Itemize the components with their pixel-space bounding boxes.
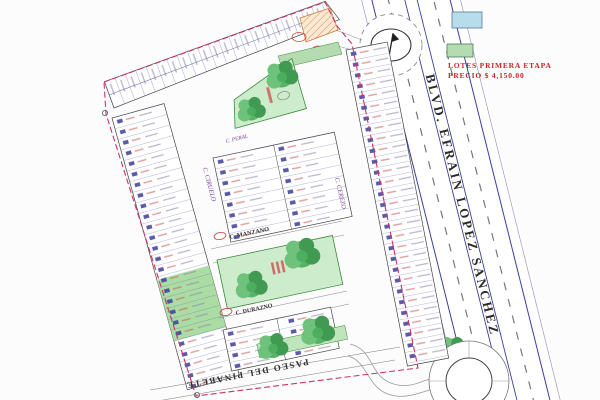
lots-left-column xyxy=(112,104,239,390)
park-upper xyxy=(222,58,307,128)
legend-line2: PRECIO $ 4,150.00 xyxy=(448,71,525,80)
street-ciruelo-label: C. CIRUELO xyxy=(201,167,217,203)
street-marker-oval xyxy=(213,231,226,240)
legend-swatch-green xyxy=(447,44,473,57)
site-plan-canvas: BLVD. EFRAIN LOPEZ SANCHEZ C. CI xyxy=(0,0,600,400)
street-peral-label: C. PERAL xyxy=(225,134,249,145)
legend-line1: LOTES PRIMERA ETAPA xyxy=(448,61,552,70)
legend-swatch-blue xyxy=(452,12,482,28)
survey-point xyxy=(102,110,107,115)
site-plan-drawing: BLVD. EFRAIN LOPEZ SANCHEZ C. CI xyxy=(0,0,600,400)
lots-block-upper xyxy=(213,132,352,242)
legend: LOTES PRIMERA ETAPA PRECIO $ 4,150.00 xyxy=(447,12,552,80)
